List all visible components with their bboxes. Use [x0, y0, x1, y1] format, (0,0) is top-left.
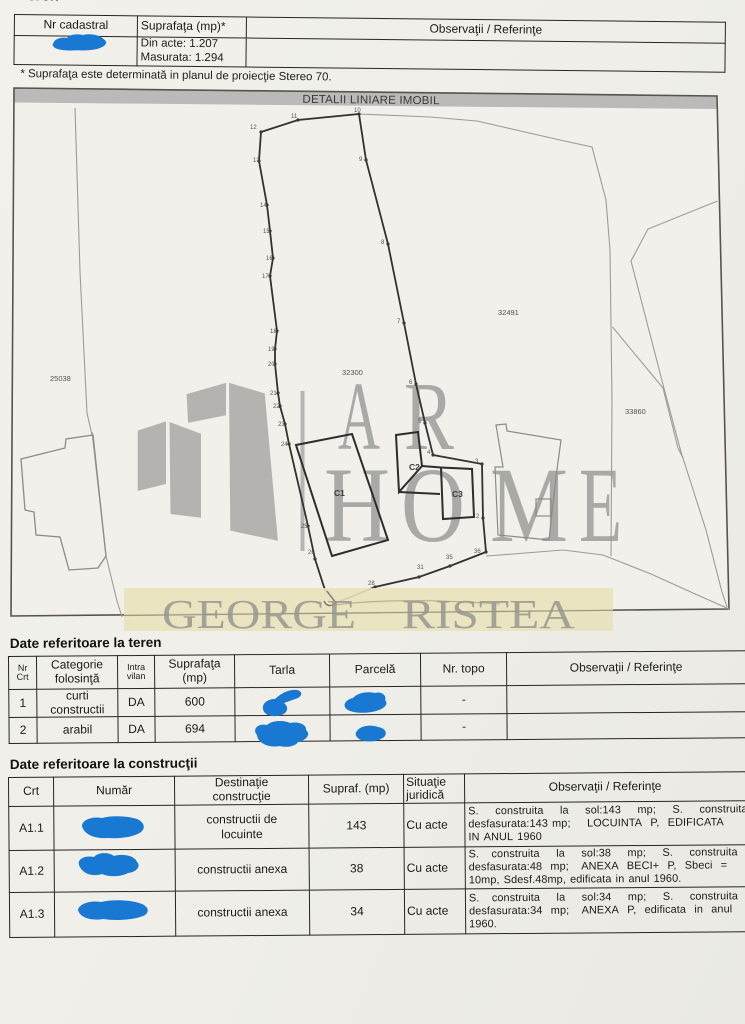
svg-text:5: 5 — [418, 419, 422, 425]
svg-text:3: 3 — [475, 459, 479, 465]
svg-text:A: A — [338, 363, 380, 471]
svg-text:25: 25 — [301, 524, 308, 530]
svg-text:18: 18 — [270, 329, 277, 335]
svg-text:31: 31 — [417, 565, 424, 571]
svg-text:2: 2 — [476, 514, 480, 520]
svg-text:14: 14 — [260, 203, 267, 209]
svg-text:GEORGE: GEORGE — [162, 591, 356, 637]
svg-text:35: 35 — [446, 555, 453, 561]
svg-text:4: 4 — [427, 450, 431, 456]
svg-text:7: 7 — [397, 319, 401, 325]
svg-text:20: 20 — [268, 362, 275, 368]
svg-text:C3: C3 — [452, 489, 463, 499]
svg-text:26: 26 — [308, 550, 315, 556]
svg-text:24: 24 — [281, 442, 288, 448]
svg-text:36: 36 — [474, 549, 481, 555]
svg-text:28: 28 — [368, 581, 375, 587]
svg-text:21: 21 — [270, 391, 277, 397]
svg-text:33860: 33860 — [625, 407, 646, 416]
svg-text:17: 17 — [262, 274, 269, 280]
svg-text:25038: 25038 — [50, 374, 71, 383]
svg-text:M: M — [490, 447, 568, 565]
svg-text:32300: 32300 — [342, 368, 363, 377]
svg-text:RISTEA: RISTEA — [402, 591, 575, 637]
svg-text:6: 6 — [409, 380, 413, 386]
svg-text:H: H — [324, 447, 390, 565]
svg-text:C2: C2 — [409, 462, 420, 472]
svg-text:8: 8 — [381, 240, 385, 246]
svg-text:22: 22 — [273, 404, 280, 410]
svg-text:R: R — [404, 363, 454, 471]
svg-text:15: 15 — [263, 229, 270, 235]
svg-text:19: 19 — [268, 347, 275, 353]
svg-text:C1: C1 — [334, 488, 345, 498]
svg-text:16: 16 — [266, 256, 273, 262]
svg-text:23: 23 — [278, 422, 285, 428]
svg-text:E: E — [579, 447, 622, 565]
svg-text:O: O — [401, 447, 465, 565]
svg-text:32491: 32491 — [498, 308, 519, 317]
